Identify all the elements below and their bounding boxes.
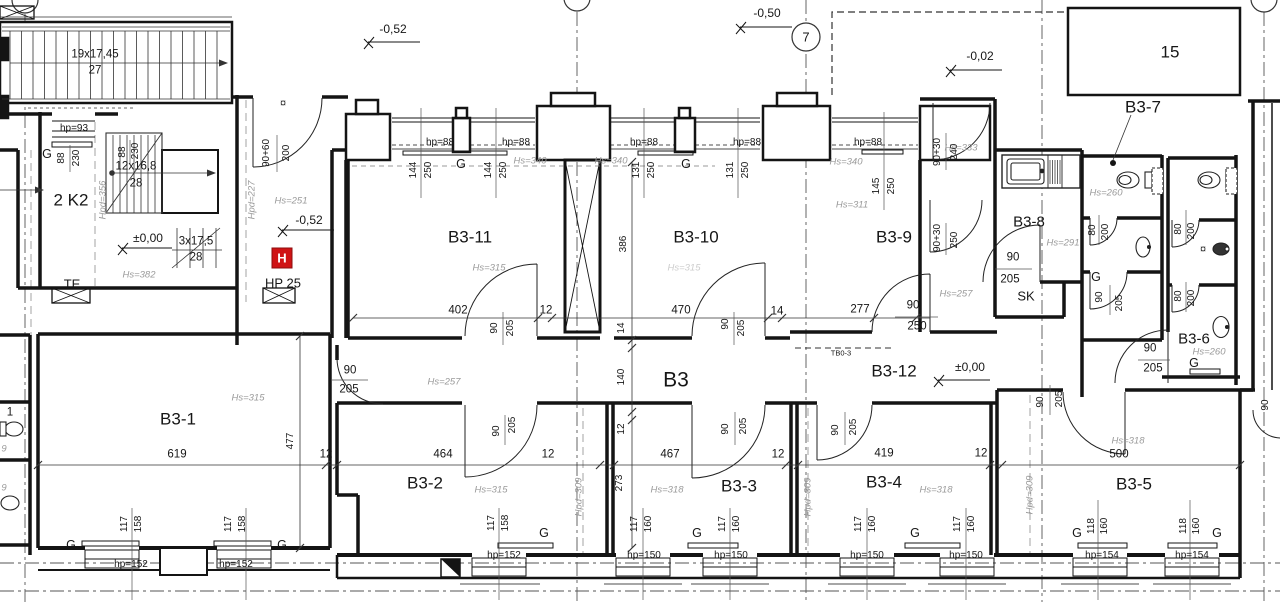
label-90-99: 90	[344, 365, 357, 377]
label-15-28: 15	[1161, 44, 1180, 61]
label-hs=251-20: Hs=251	[274, 196, 307, 206]
label-230-5: 230	[72, 150, 82, 167]
label-88-4: 88	[57, 152, 67, 163]
label-hs=382-15: Hs=382	[122, 270, 155, 280]
label-g-168: G	[1072, 527, 1082, 540]
label-hs=257-74: Hs=257	[939, 289, 972, 299]
label-240-52: 240	[950, 144, 960, 161]
annotation-labels: 19x17,4527hp=93G882308823012x16,8282 K2H…	[0, 0, 1280, 602]
label-250-44: 250	[741, 162, 751, 179]
label-205-70: 205	[1115, 295, 1125, 312]
label-145-45: 145	[872, 178, 882, 195]
label-hp=152-149: hp=152	[487, 551, 521, 561]
label-hs=318-125: Hs=318	[1111, 436, 1144, 446]
label-117-146: 117	[487, 515, 497, 531]
label-±0,00-12: ±0,00	[133, 232, 163, 244]
label-477-109: 477	[286, 433, 296, 450]
label-g-3: G	[42, 148, 52, 161]
label-250-40: 250	[499, 162, 509, 179]
label-205-80: 205	[1143, 363, 1162, 375]
label-g-81: G	[1189, 357, 1199, 370]
label-117-140: 117	[224, 516, 234, 532]
label-205-93: 205	[737, 320, 747, 337]
label-b3-95: B3	[663, 370, 689, 391]
label-hs=315-57: Hs=315	[667, 263, 700, 273]
label-117-157: 117	[854, 516, 864, 532]
label-160-160: 160	[967, 516, 977, 533]
label-90+30-51: 90+30	[933, 138, 943, 166]
label-9-174: 9	[1, 483, 6, 493]
label-158-139: 158	[134, 516, 144, 533]
floorplan-canvas: 19x17,4527hp=93G882308823012x16,8282 K2H…	[0, 0, 1280, 602]
label-hs=291-60: Hs=291	[1046, 238, 1079, 248]
label-386-101: 386	[619, 236, 629, 253]
label-hpd=309-127: Hpd=309	[803, 478, 813, 517]
label-b3-10-56: B3-10	[673, 229, 718, 246]
label-g-143: G	[277, 539, 287, 552]
label-160-165: 160	[1100, 518, 1110, 535]
label-28-14: 28	[190, 252, 203, 264]
label-g-161: G	[910, 527, 920, 540]
hydrant-icon: H	[272, 248, 293, 269]
label-90-69: 90	[1095, 291, 1105, 302]
label-hp=150-156: hp=150	[714, 551, 748, 561]
label-90-88: 90	[907, 300, 920, 312]
label-90+30-75: 90+30	[933, 224, 943, 252]
label-117-152: 117	[718, 516, 728, 532]
label-b3-3-120: B3-3	[721, 478, 757, 495]
label-158-147: 158	[501, 515, 511, 532]
label-hs=318-121: Hs=318	[650, 485, 683, 495]
label-144-37: 144	[409, 162, 419, 179]
label-hs=318-123: Hs=318	[919, 485, 952, 495]
label-619-108: 619	[167, 449, 186, 461]
label-hs=257-98: Hs=257	[427, 377, 460, 387]
label-205-136: 205	[1055, 391, 1065, 408]
label-90-133: 90	[831, 424, 841, 435]
label-9-173: 9	[1, 444, 6, 454]
label-g-36: G	[681, 158, 691, 171]
label-90-79: 90	[1144, 343, 1157, 355]
label-±0,00-97: ±0,00	[955, 361, 985, 373]
label-402-83: 402	[448, 305, 467, 317]
label-te-16: TE	[64, 278, 81, 291]
label-160-167: 160	[1192, 518, 1202, 535]
label-158-141: 158	[238, 516, 248, 533]
label-hs=311-53: Hs=311	[836, 200, 868, 210]
label-200-65: 200	[1187, 223, 1197, 240]
label-117-150: 117	[630, 516, 640, 532]
label-g-142: G	[66, 539, 76, 552]
label-117-138: 117	[120, 516, 130, 532]
label-2k2-10: 2 K2	[54, 192, 89, 209]
label-131-43: 131	[726, 162, 736, 179]
label-250-38: 250	[424, 162, 434, 179]
label-12-118: 12	[975, 448, 988, 460]
label-205-132: 205	[739, 418, 749, 435]
label--82: ¤	[1200, 245, 1206, 256]
label-90+60-18: 90+60	[262, 139, 272, 167]
label-g-68: G	[1091, 271, 1101, 284]
label-1-172: 1	[7, 407, 13, 419]
label-200-67: 200	[1187, 290, 1197, 307]
label-12x16,8-8: 12x16,8	[116, 161, 157, 173]
label-b3-6-77: B3-6	[1178, 332, 1210, 347]
label-g-148: G	[539, 527, 549, 540]
label-90-129: 90	[492, 425, 502, 436]
label-80-62: 80	[1088, 224, 1098, 235]
label-140-103: 140	[617, 369, 627, 386]
label-90-71: 90	[1007, 252, 1020, 264]
label-hs=340-47: Hs=340	[513, 156, 546, 166]
label-hpd=309-126: Hpd=309	[574, 478, 584, 517]
label-160-153: 160	[732, 516, 742, 533]
label-200-19: 200	[282, 145, 292, 162]
label-205-91: 205	[506, 320, 516, 337]
label-b3-4-122: B3-4	[866, 474, 902, 491]
label-12-114: 12	[542, 449, 555, 461]
label-hp=88-32: hp=88	[630, 138, 658, 148]
label-131-41: 131	[632, 162, 642, 179]
label-500-119: 500	[1109, 449, 1128, 461]
label--0,52-25: -0,52	[379, 23, 406, 35]
label-118-166: 118	[1179, 518, 1189, 534]
label-27-1: 27	[89, 65, 102, 77]
label-3x17,5-13: 3x17,5	[179, 236, 214, 248]
label-12-110: 12	[320, 449, 333, 461]
label-467-115: 467	[660, 449, 679, 461]
label-b3-7-29: B3-7	[1125, 99, 1161, 116]
label-464-113: 464	[433, 449, 452, 461]
label-hs=315-112: Hs=315	[474, 485, 507, 495]
label-419-117: 419	[874, 448, 893, 460]
label-b3-1-106: B3-1	[160, 411, 196, 428]
label-g-169: G	[1212, 527, 1222, 540]
label-90-90: 90	[490, 322, 500, 333]
label-205-72: 205	[1000, 274, 1019, 286]
label-hpd=309-128: Hpd=309	[1025, 476, 1035, 515]
label-14-86: 14	[771, 306, 784, 318]
label-hs=340-48: Hs=340	[594, 156, 627, 166]
label-hpd=227-17: Hpd=227	[247, 181, 257, 220]
label--0,52-21: -0,52	[295, 214, 322, 226]
label-250-89: 250	[907, 321, 926, 333]
label-144-39: 144	[484, 162, 494, 179]
label-b3-8-59: B3-8	[1013, 215, 1045, 230]
label-hp=154-171: hp=154	[1175, 551, 1209, 561]
label-80-64: 80	[1174, 223, 1184, 234]
label-hpd=356-11: Hpd=356	[98, 181, 108, 220]
label-160-151: 160	[644, 516, 654, 533]
label-hp=154-170: hp=154	[1085, 551, 1119, 561]
label-277-87: 277	[850, 304, 869, 316]
label-90-135: 90	[1036, 396, 1046, 407]
label-hp=150-163: hp=150	[949, 551, 983, 561]
label-118-164: 118	[1087, 518, 1097, 534]
label-hs=260-61: Hs=260	[1089, 188, 1122, 198]
label-90-137: 90	[1261, 399, 1271, 410]
label-hs=340-49: Hs=340	[829, 157, 862, 167]
label-205-134: 205	[849, 419, 859, 436]
label-hp=150-162: hp=150	[850, 551, 884, 561]
label-b3-9-58: B3-9	[876, 229, 912, 246]
label-14-102: 14	[617, 322, 627, 333]
label-80-66: 80	[1174, 290, 1184, 301]
label--0,02-27: -0,02	[966, 50, 993, 62]
label-470-85: 470	[671, 305, 690, 317]
label-b3-2-111: B3-2	[407, 475, 443, 492]
label-250-42: 250	[647, 162, 657, 179]
label-205-100: 205	[339, 384, 358, 396]
label-28-9: 28	[130, 178, 143, 190]
label-hp=150-155: hp=150	[627, 551, 661, 561]
label-hp=88-31: hp=88	[502, 138, 530, 148]
label-sk-73: SK	[1017, 290, 1034, 303]
label-hp=93-2: hp=93	[60, 124, 88, 134]
label-b3-12-96: B3-12	[871, 363, 916, 380]
label-tb0-3-94: TB0-3	[831, 349, 851, 357]
label-160-158: 160	[868, 516, 878, 533]
label-g-35: G	[456, 158, 466, 171]
label-117-159: 117	[953, 516, 963, 532]
grid-axis-7: 7	[802, 31, 809, 44]
label-250-46: 250	[887, 178, 897, 195]
label-90-131: 90	[721, 423, 731, 434]
label-205-130: 205	[508, 417, 518, 434]
label-90-92: 90	[721, 318, 731, 329]
label-200-63: 200	[1101, 224, 1111, 241]
label-hs=315-55: Hs=315	[472, 263, 505, 273]
label-230-7: 230	[131, 143, 141, 160]
label-19x17,45-0: 19x17,45	[71, 49, 118, 61]
label-g-154: G	[692, 527, 702, 540]
label-273-105: 273	[615, 475, 625, 492]
label--24: ¤	[280, 99, 286, 110]
label-250-76: 250	[950, 232, 960, 249]
label-hp=88-30: hp=88	[426, 138, 454, 148]
label-hp25-23: HP 25	[265, 277, 301, 290]
label-b3-11-54: B3-11	[448, 229, 492, 246]
label--0,50-26: -0,50	[753, 7, 780, 19]
label-88-6: 88	[118, 146, 128, 157]
label-hp=88-34: hp=88	[854, 138, 882, 148]
label-hp=152-145: hp=152	[219, 560, 253, 570]
label-12-84: 12	[540, 305, 553, 317]
label-hs=315-107: Hs=315	[231, 393, 264, 403]
label-12-104: 12	[617, 423, 627, 434]
label-hp=88-33: hp=88	[733, 138, 761, 148]
label-12-116: 12	[772, 449, 785, 461]
label-b3-5-124: B3-5	[1116, 476, 1152, 493]
label-hp=152-144: hp=152	[114, 560, 148, 570]
